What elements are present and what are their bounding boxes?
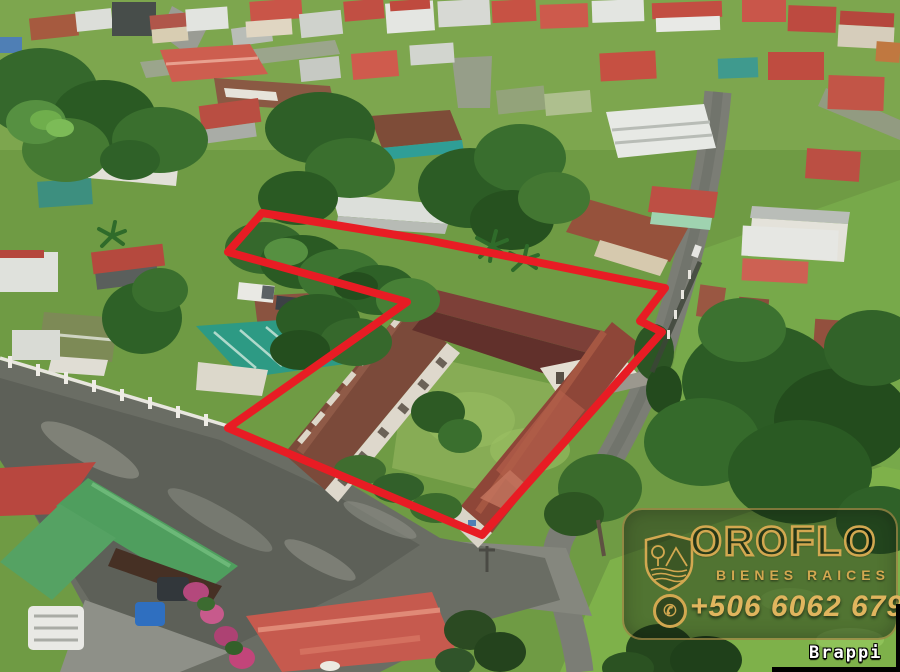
- oroflo-shield-logo: [642, 532, 696, 592]
- credit-label: Brappi: [809, 643, 882, 663]
- watermark-phone: +506 6062 6795: [690, 590, 900, 624]
- aerial-photo: OROFLO BIENES RAICES ✆ +506 6062 6795 Br…: [0, 0, 900, 672]
- oroflo-watermark: OROFLO BIENES RAICES ✆ +506 6062 6795: [622, 508, 898, 640]
- watermark-tagline: BIENES RAICES: [716, 567, 896, 583]
- phone-icon: ✆: [653, 594, 687, 628]
- right-black-bar: [896, 604, 900, 672]
- bottom-black-bar: [772, 667, 900, 672]
- watermark-brand: OROFLO: [690, 518, 894, 565]
